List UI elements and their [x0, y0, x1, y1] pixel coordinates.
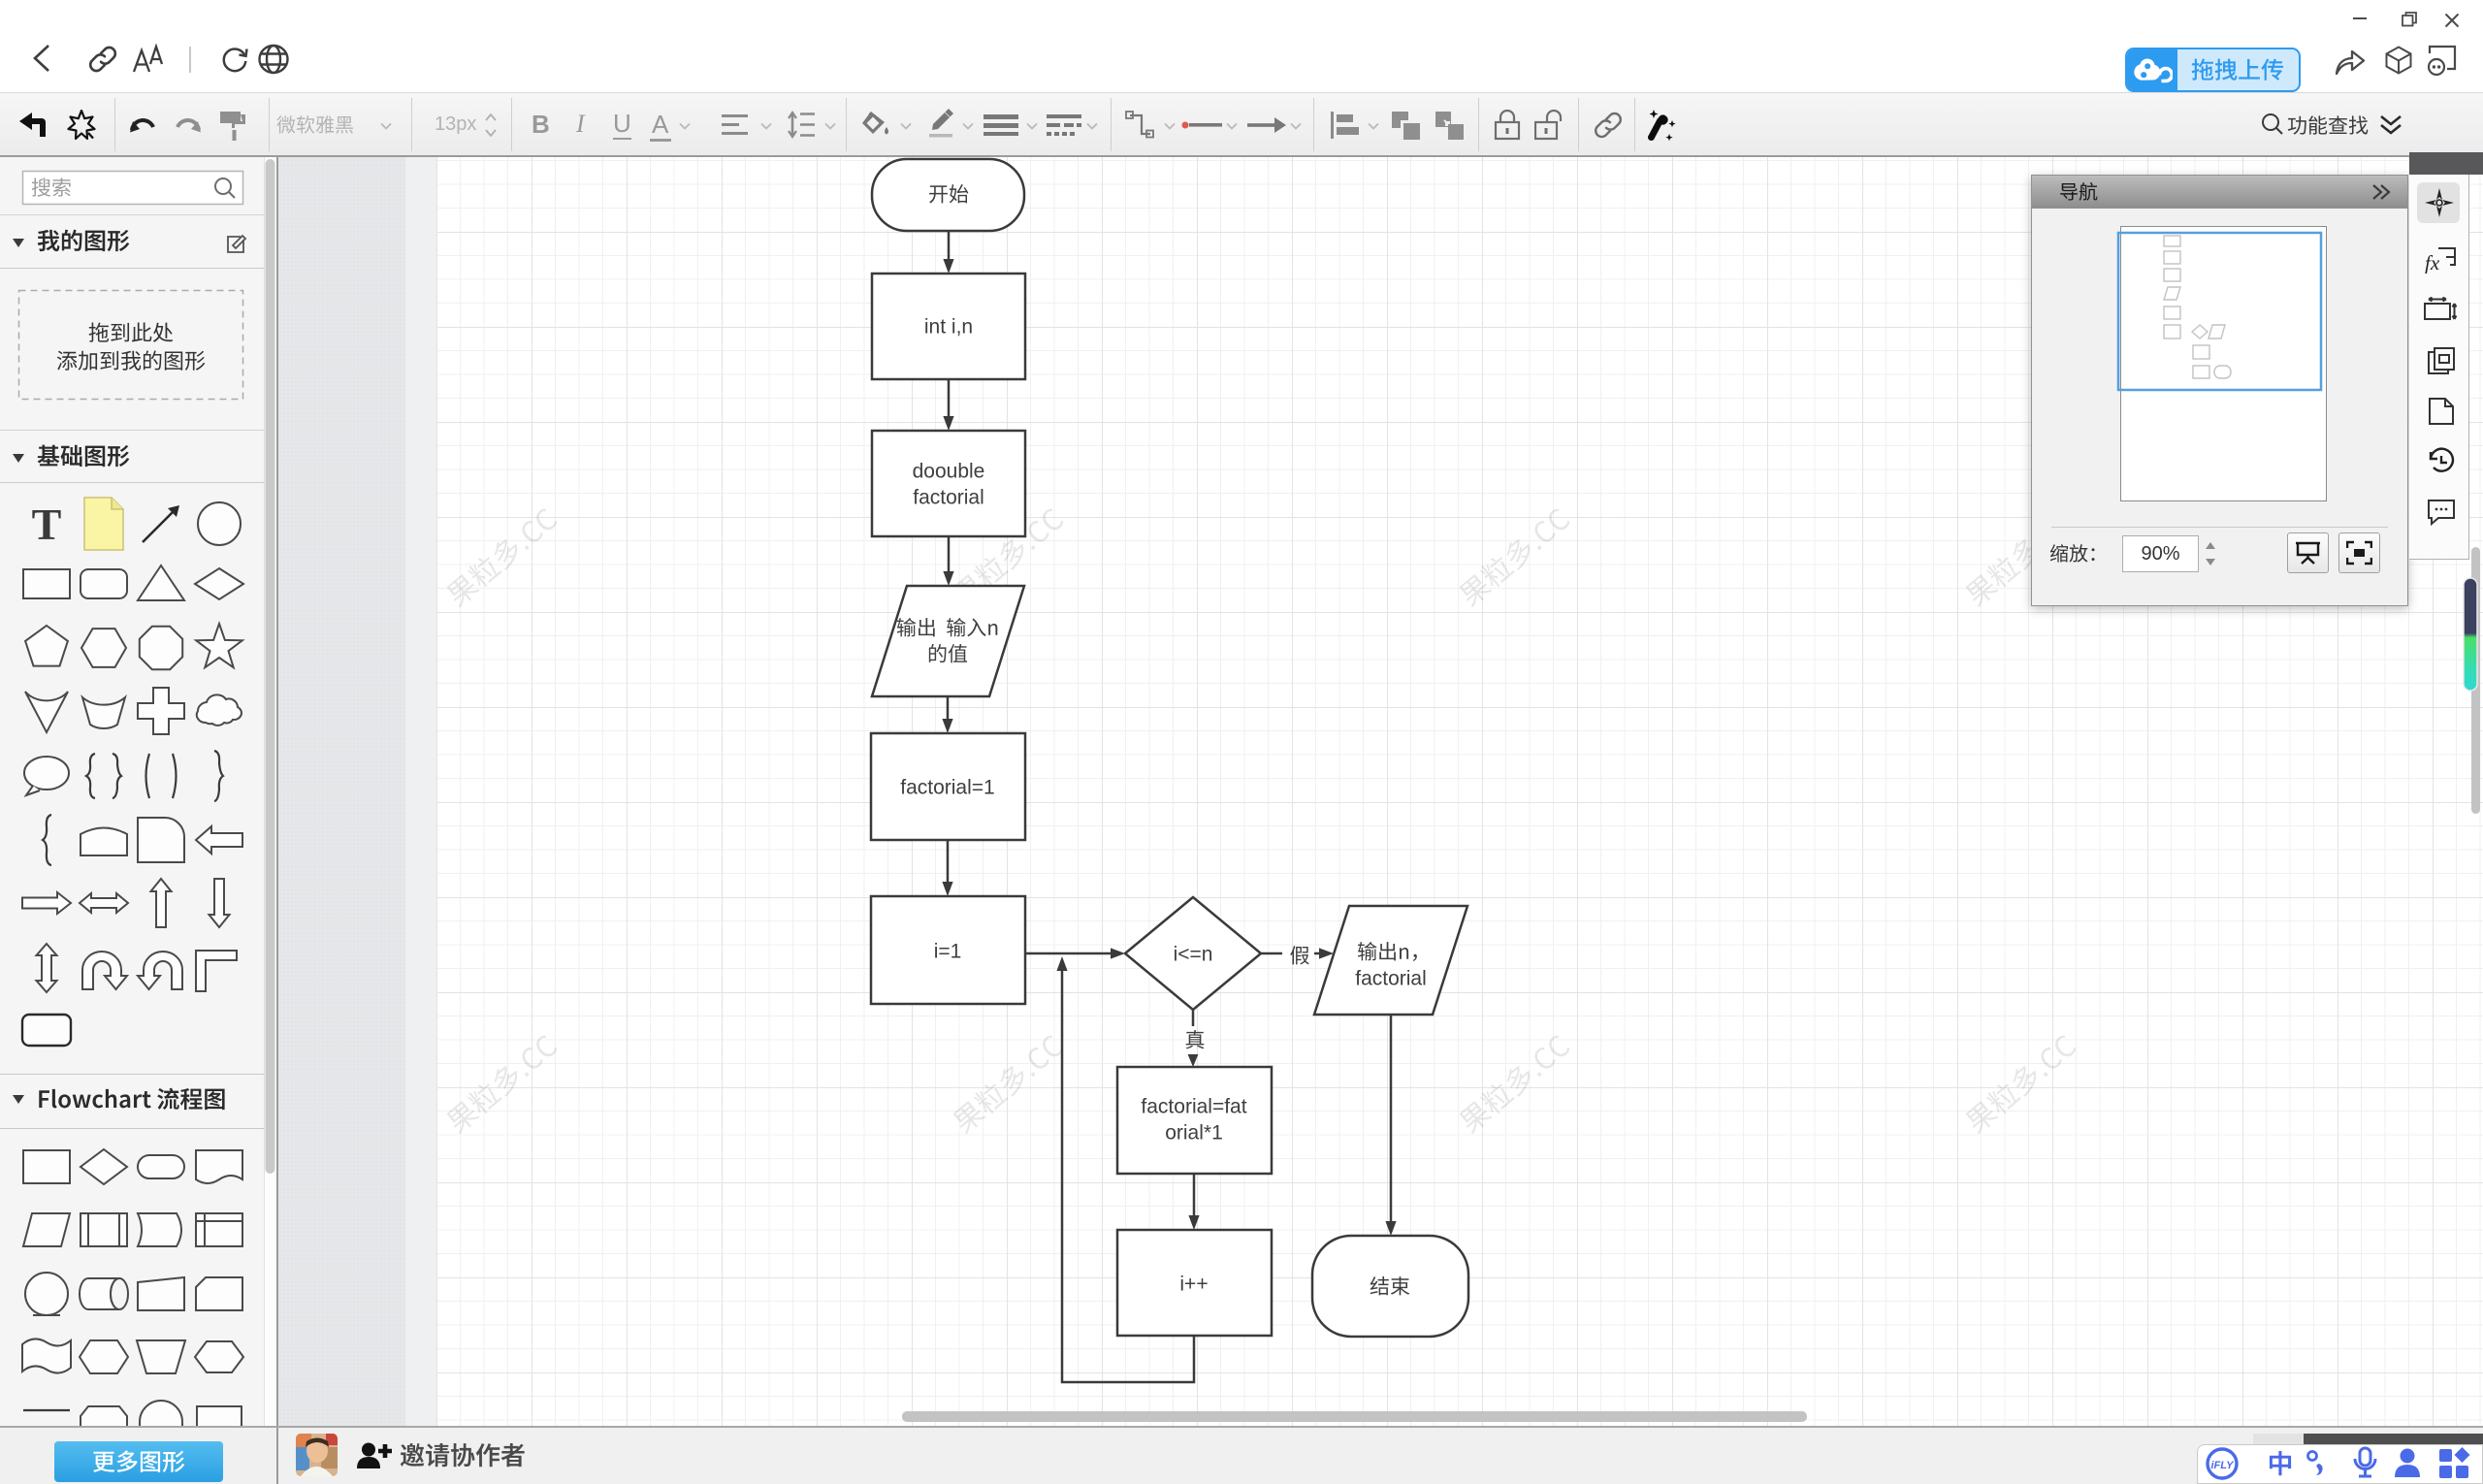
svg-text:factorial=fat: factorial=fat	[1141, 1095, 1246, 1117]
svg-text:factorial: factorial	[913, 486, 984, 508]
svg-text:fx: fx	[2425, 251, 2440, 274]
svg-text:iFLY: iFLY	[2210, 1460, 2235, 1471]
svg-text:i=1: i=1	[934, 940, 962, 962]
svg-text:factorial: factorial	[1355, 967, 1427, 989]
svg-text:factorial=1: factorial=1	[900, 776, 994, 798]
svg-text:T: T	[32, 500, 62, 549]
svg-text:doouble: doouble	[913, 460, 985, 482]
svg-text:orial*1: orial*1	[1165, 1121, 1223, 1144]
svg-text:i++: i++	[1179, 1273, 1208, 1295]
svg-text:i<=n: i<=n	[1174, 943, 1213, 965]
svg-text:int i,n: int i,n	[924, 315, 973, 338]
